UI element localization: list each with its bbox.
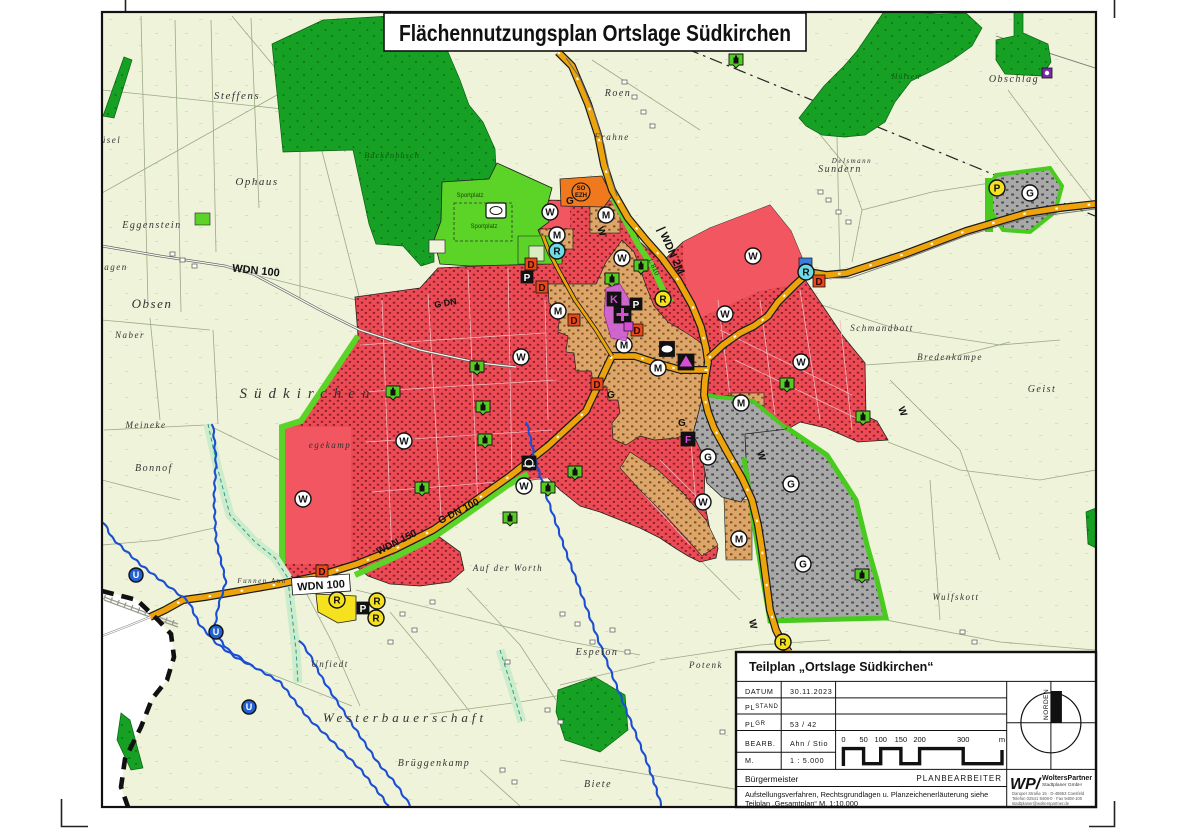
svg-text:Hagen: Hagen [95,262,128,272]
svg-text:R: R [802,268,810,279]
svg-text:Steffens: Steffens [214,90,260,102]
svg-text:53 / 42: 53 / 42 [790,720,817,729]
svg-text:K: K [610,294,618,306]
svg-text:30.11.2023: 30.11.2023 [790,687,832,696]
svg-text:Hülsen: Hülsen [891,72,921,81]
svg-text:U: U [133,570,140,580]
svg-text:Ophaus: Ophaus [235,176,278,188]
svg-text:W: W [617,254,627,265]
svg-text:W: W [748,252,758,263]
svg-text:D: D [570,316,577,327]
svg-text:W: W [519,482,529,493]
svg-text:P: P [994,184,1001,195]
svg-text:D: D [318,567,325,578]
svg-text:R: R [372,614,380,625]
svg-text:W: W [516,353,526,364]
svg-text:Funnen Ann: Funnen Ann [236,577,286,585]
svg-text:W: W [796,358,806,369]
svg-text:M: M [602,211,610,222]
svg-text:U: U [246,702,253,712]
svg-text:R: R [333,596,341,607]
svg-text:P: P [524,273,531,284]
svg-text:Obsen: Obsen [132,296,173,311]
svg-text:Ahn / Stio: Ahn / Stio [790,739,828,748]
svg-text:50: 50 [859,735,867,744]
svg-text:Flächennutzungsplan Ortslage S: Flächennutzungsplan Ortslage Südkirchen [399,20,791,46]
svg-text:Frahne: Frahne [593,132,630,142]
svg-text:stadtplaner@wolterspartner.de: stadtplaner@wolterspartner.de [1012,801,1070,806]
svg-text:Südkirchen: Südkirchen [240,386,377,402]
svg-text:Aufstellungsverfahren, Rechtsg: Aufstellungsverfahren, Rechtsgrundlagen … [745,790,988,799]
svg-text:Teilplan „Gesamtplan“ M. 1:10.: Teilplan „Gesamtplan“ M. 1:10.000 [745,799,858,808]
svg-text:Unfiedt: Unfiedt [311,659,349,669]
svg-text:R: R [373,597,381,608]
svg-text:Westerbauerschaft: Westerbauerschaft [323,710,487,725]
svg-text:M: M [737,399,745,410]
svg-text:W: W [698,498,708,509]
svg-text:Brüggenkamp: Brüggenkamp [398,758,471,769]
svg-text:NORDEN: NORDEN [1043,689,1050,720]
svg-text:R: R [779,638,787,649]
svg-text:Naber: Naber [114,330,145,340]
svg-text:W: W [298,495,308,506]
svg-text:W: W [720,310,730,321]
svg-text:Obschlag: Obschlag [989,74,1039,85]
svg-text:Teilplan „Ortslage Südkirchen“: Teilplan „Ortslage Südkirchen“ [749,660,934,674]
svg-text:Sportplatz: Sportplatz [456,193,483,199]
svg-text:M.: M. [745,756,754,765]
svg-text:BEARB.: BEARB. [745,739,776,748]
svg-text:Sportplatz: Sportplatz [470,224,497,230]
svg-text:U: U [213,627,220,637]
svg-text:Delsmann: Delsmann [831,157,872,165]
svg-text:WoltersPartner: WoltersPartner [1042,775,1092,782]
svg-text:Eggenstein: Eggenstein [121,220,181,231]
svg-text:M: M [654,364,662,375]
svg-text:M: M [554,307,562,318]
svg-text:Auf der Worth: Auf der Worth [472,563,543,573]
svg-text:M: M [735,535,743,546]
svg-text:M: M [620,341,628,352]
svg-text:EZH: EZH [575,193,587,199]
svg-text:P: P [633,300,640,311]
svg-text:Meineke: Meineke [125,420,167,430]
svg-text:Sundern: Sundern [818,164,862,175]
svg-text:F: F [685,435,691,446]
svg-text:1 : 5.000: 1 : 5.000 [790,756,824,765]
svg-text:0: 0 [841,735,845,744]
svg-text:G: G [799,560,807,571]
svg-text:Wulfskott: Wulfskott [933,592,980,602]
svg-text:Schmandbott: Schmandbott [850,323,914,333]
svg-text:SO: SO [577,186,586,192]
svg-text:M: M [553,231,561,242]
svg-text:DATUM: DATUM [745,687,774,696]
svg-text:Bürgermeister: Bürgermeister [745,774,799,784]
svg-text:G: G [787,480,795,491]
svg-text:W: W [545,208,555,219]
svg-text:Bonnof: Bonnof [135,463,173,474]
svg-text:150: 150 [895,735,908,744]
svg-text:Bredenkampe: Bredenkampe [917,352,983,362]
svg-text:G: G [678,418,686,429]
svg-text:m: m [999,735,1005,744]
svg-text:PLANBEARBEITER: PLANBEARBEITER [916,774,1002,783]
svg-text:Geist: Geist [1028,384,1057,395]
svg-text:Bäckenbusch: Bäckenbusch [364,150,420,160]
svg-text:R: R [553,247,561,258]
svg-text:Potenk: Potenk [688,660,723,670]
svg-text:Espelon: Espelon [575,647,619,658]
svg-text:D: D [538,283,545,294]
svg-text:R: R [659,295,667,306]
svg-text:G: G [1026,189,1034,200]
svg-text:G: G [607,390,615,401]
svg-text:egekamp: egekamp [309,440,351,450]
svg-text:W: W [399,437,409,448]
svg-text:300: 300 [957,735,970,744]
svg-text:G: G [566,196,574,207]
svg-text:D: D [593,380,600,391]
svg-text:Roen: Roen [604,88,632,99]
svg-text:D: D [815,277,822,288]
svg-text:hlüsel: hlüsel [91,135,122,145]
svg-text:Biete: Biete [584,779,612,790]
svg-text:Stadtplaner GmbH: Stadtplaner GmbH [1042,782,1082,788]
svg-text:P: P [360,604,367,615]
svg-text:100: 100 [874,735,887,744]
svg-text:G: G [704,453,712,464]
svg-text:D: D [633,326,640,337]
svg-text:D: D [527,260,534,271]
svg-text:200: 200 [913,735,926,744]
